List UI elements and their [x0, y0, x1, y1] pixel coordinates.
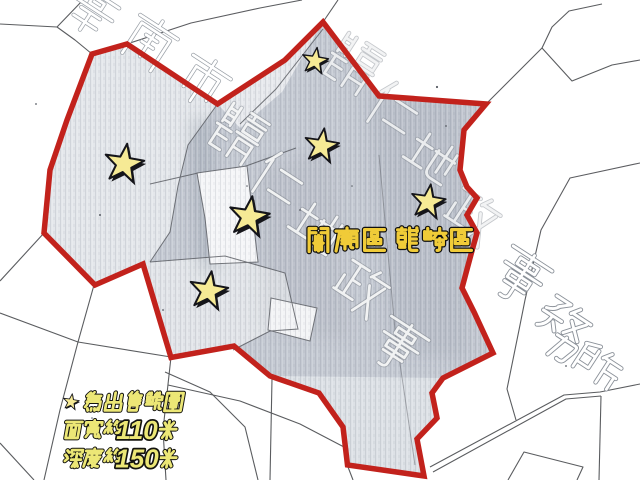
svg-text:110: 110	[116, 415, 158, 445]
svg-text:150: 150	[115, 444, 159, 474]
